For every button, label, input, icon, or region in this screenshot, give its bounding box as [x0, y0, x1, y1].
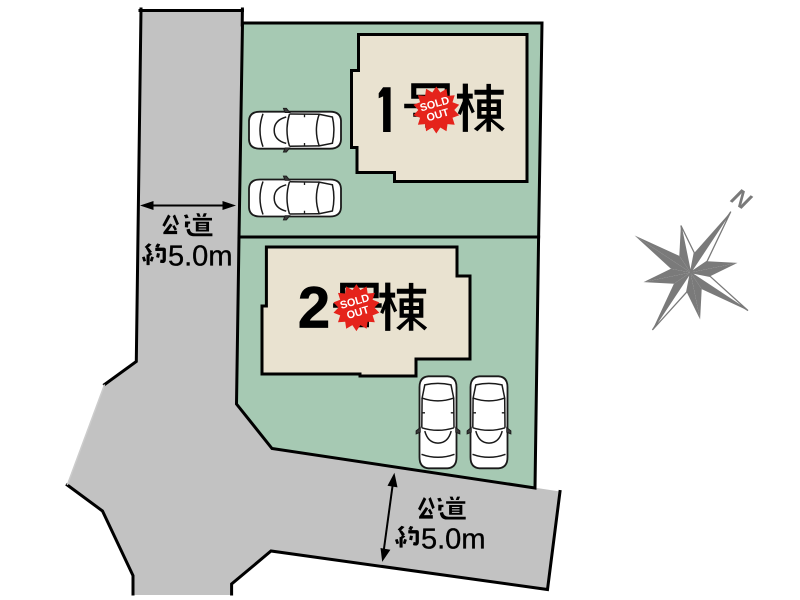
svg-text:2: 2: [298, 276, 330, 341]
svg-text:5.0m: 5.0m: [421, 524, 485, 556]
svg-text:5.0m: 5.0m: [168, 241, 232, 273]
